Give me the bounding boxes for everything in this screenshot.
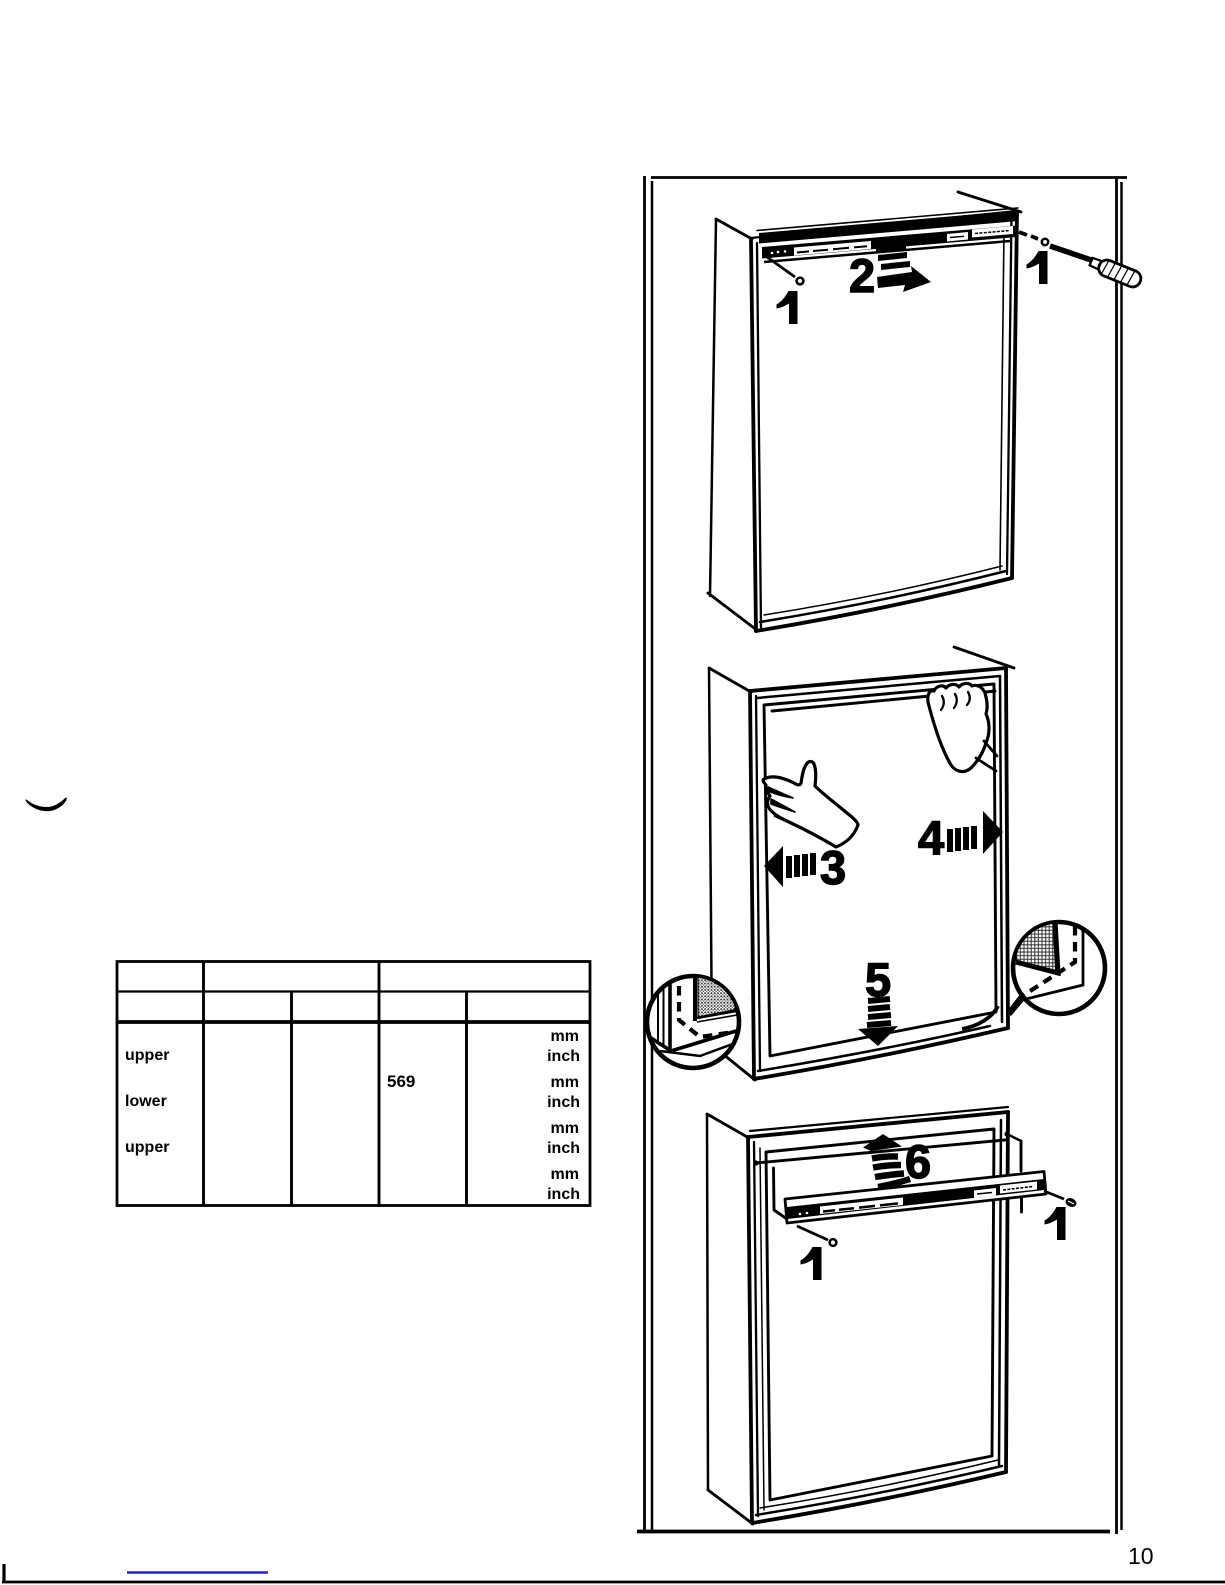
svg-text:inch: inch [547,1186,580,1203]
svg-text:mm: mm [551,1120,579,1137]
svg-text:inch: inch [547,1094,580,1111]
svg-text:mm: mm [551,1028,579,1045]
svg-text:lower: lower [125,1093,167,1110]
svg-text:mm: mm [551,1166,579,1183]
svg-text:upper: upper [125,1047,169,1064]
svg-text:3: 3 [820,841,846,894]
svg-text:inch: inch [547,1140,580,1157]
svg-text:10: 10 [1128,1543,1154,1569]
svg-text:inch: inch [547,1048,580,1065]
svg-text:569: 569 [387,1072,415,1091]
svg-text:6: 6 [905,1135,931,1188]
svg-text:2: 2 [849,249,875,302]
svg-text:upper: upper [125,1139,169,1156]
svg-text:4: 4 [918,811,944,864]
svg-text:mm: mm [551,1074,579,1091]
